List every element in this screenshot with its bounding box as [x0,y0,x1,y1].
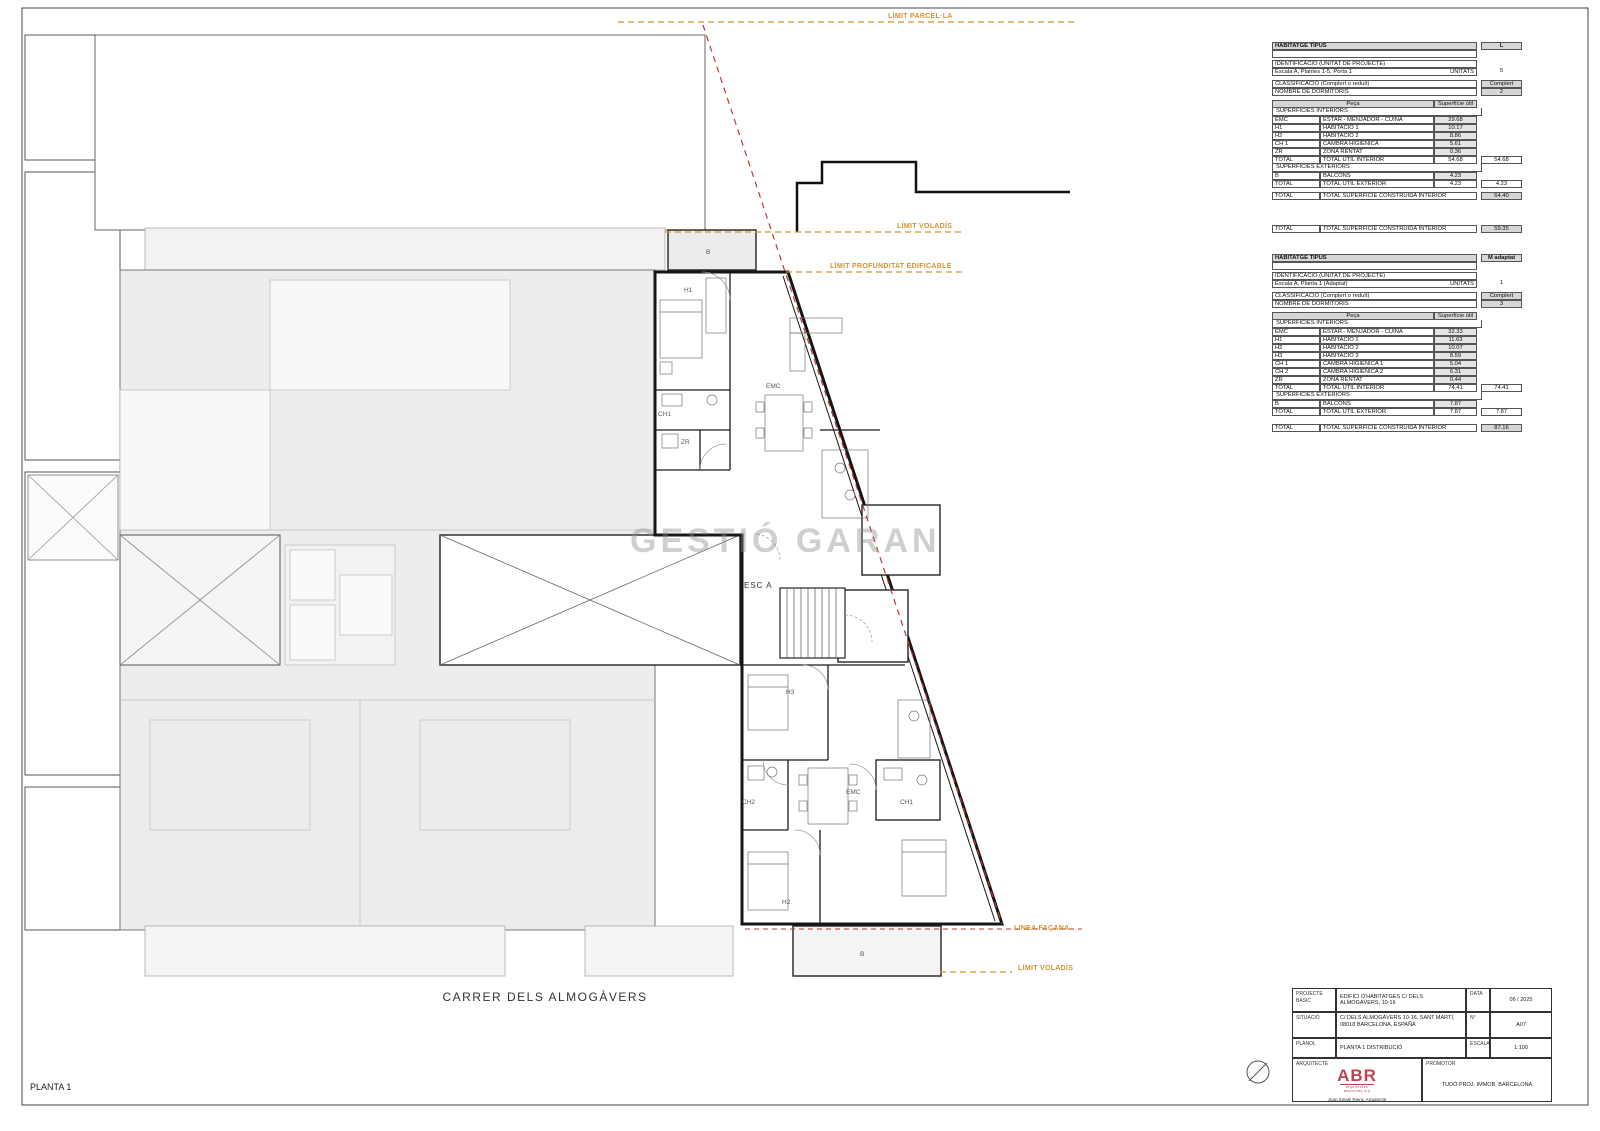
row-code: EMC [1272,116,1320,124]
t2-ident-value: Escala A, Planta 1 (Adaptat) UNITATS [1272,280,1477,288]
table-row: CH 2 CAMBRA HIGIÈNICA 2 6.31 [1272,368,1524,376]
row-name: HABITACIÓ 3 [1320,352,1434,360]
row-name: TOTAL ÚTIL INTERIOR [1320,156,1434,164]
situacio-value: C/ DELS ALMOGÀVERS 10-16, SANT MARTÍ, 08… [1336,1012,1466,1038]
table-row: EMC ESTAR - MENJADOR - CUINA 32.33 [1272,328,1524,336]
row-total: 7.87 [1481,408,1522,416]
table-row: B BALCONS 4.23 [1272,172,1524,180]
row-value: 7.87 [1434,408,1477,416]
data-value: 06 / 2025 [1490,988,1552,1012]
escala-label: ESCALA [1466,1038,1490,1058]
row-code: H2 [1272,132,1320,140]
terrace-lower [838,590,908,662]
balcony-top [668,230,756,270]
t1-ident-label: IDENTIFICACIÓ (UNITAT DE PROJECTE) [1272,60,1477,68]
table-row: EMC ESTAR - MENJADOR - CUINA 29.68 [1272,116,1524,124]
t2-unitats-value: 1 [1481,280,1522,288]
table-row: ZR ZONA RENTAT 0.36 [1272,148,1524,156]
t2-unitats-label: UNITATS [1450,281,1474,287]
room-label-h3: H3 [786,689,795,696]
linea-facana-label: LINEA FAÇANA [1014,925,1069,932]
row-name: TOTAL ÚTIL EXTERIOR [1320,180,1434,188]
row-code: H2 [1272,344,1320,352]
projecte-value: EDIFICI D'HABITATGES C/ DELS ALMOGÀVERS,… [1336,988,1466,1012]
table-row: H1 HABITACIÓ 1 11.63 [1272,336,1524,344]
limit-voladis-top-label: LÍMIT VOLADÍS [897,221,952,230]
room-label-emc-upper: EMC [766,383,781,390]
row-total: 54.68 [1481,156,1522,164]
title-block: PROJECTE BÀSIC EDIFICI D'HABITATGES C/ D… [1292,988,1552,1102]
row-value: 4.23 [1434,172,1477,180]
t1-dorm-value: 2 [1481,88,1522,96]
room-label-h1: H1 [684,287,693,294]
row-name: CAMBRA HIGIÈNICA 2 [1320,368,1434,376]
room-label-emc-lower: EMC [846,789,861,796]
row-name: ESTAR - MENJADOR - CUINA [1320,328,1434,336]
street-label: CARRER DELS ALMOGÀVERS [442,989,647,1004]
data-label: DATA [1466,988,1490,1012]
row-code: ZR [1272,376,1320,384]
row-value: 0.44 [1434,376,1477,384]
t1-tipus-label: HABITATGE TIPUS [1272,42,1477,50]
row-value: 7.87 [1434,400,1477,408]
planol-value: PLANTA 1 DISTRIBUCIÓ [1336,1038,1466,1058]
balcony-bottom [793,926,941,976]
table-row: B BALCONS 7.87 [1272,400,1524,408]
num-value: A07 [1490,1012,1552,1038]
t2-blank-row [1272,262,1477,270]
situacio-label: SITUACIÓ [1292,1012,1336,1038]
row-name: HABITACIÓ 1 [1320,124,1434,132]
row-code: H1 [1272,336,1320,344]
t2-classif-value: Complert [1481,292,1522,300]
row-name: ESTAR - MENJADOR - CUINA [1320,116,1434,124]
row-code: TOTAL [1272,180,1320,188]
room-label-balcony-bottom: B [860,951,864,958]
sidewalk-center [585,926,733,976]
row-name: BALCONS [1320,400,1434,408]
t1-built-total-row: TOTAL TOTAL SUPERFÍCIE CONSTRUÏDA INTERI… [1272,192,1524,200]
row-value: 32.33 [1434,328,1477,336]
row-value: 29.68 [1434,116,1477,124]
row-code: H3 [1272,352,1320,360]
row-value: 5.04 [1434,360,1477,368]
table-habitatge-m: HABITATGE TIPUS M adaptat IDENTIFICACIÓ … [1272,254,1524,432]
mid-total-row: TOTAL TOTAL SUPERFÍCIE CONSTRUÏDA INTERI… [1272,225,1524,233]
t2-dorm-value: 3 [1481,300,1522,308]
row-name: HABITACIÓ 2 [1320,344,1434,352]
t2-col-sup: Superfície útil [1434,312,1477,320]
row-code: ZR [1272,148,1320,156]
row-total: 59.35 [1481,225,1522,233]
table-row: H2 HABITACIÓ 2 10.07 [1272,344,1524,352]
row-name: TOTAL ÚTIL EXTERIOR [1320,408,1434,416]
lightwell-left [120,535,280,665]
row-value: 74.41 [1434,384,1477,392]
row-code: TOTAL [1272,384,1320,392]
t1-classif-value: Complert [1481,80,1522,88]
row-value: 8.86 [1434,132,1477,140]
t2-ident-text: Escala A, Planta 1 (Adaptat) [1275,281,1348,287]
room-label-h2: H2 [782,899,791,906]
row-name: TOTAL SUPERFÍCIE CONSTRUÏDA INTERIOR [1320,225,1477,233]
row-name: HABITACIÓ 1 [1320,336,1434,344]
t1-blank-row [1272,50,1477,58]
row-code: CH 1 [1272,140,1320,148]
arquitecte-cell: ARQUITECTE ABR arquitectes associats slp… [1292,1058,1422,1102]
t2-dorm-label: NOMBRE DE DORMITORIS [1272,300,1477,308]
table-row: H2 HABITACIÓ 2 8.86 [1272,132,1524,140]
row-value: 11.63 [1434,336,1477,344]
row-name: TOTAL SUPERFÍCIE CONSTRUÏDA INTERIOR [1320,424,1477,432]
t2-int-total-row: TOTAL TOTAL ÚTIL INTERIOR 74.41 74.41 [1272,384,1524,392]
row-name: HABITACIÓ 2 [1320,132,1434,140]
row-total: 74.41 [1481,384,1522,392]
limit-parcella-label: LÍMIT PARCEL·LA [888,11,953,20]
left-shaft-cross [28,475,118,560]
row-code: TOTAL [1272,424,1320,432]
row-total: 87.16 [1481,424,1522,432]
row-value: 4.23 [1434,180,1477,188]
sidewalk-left [145,926,505,976]
row-name: ZONA RENTAT [1320,376,1434,384]
t2-ext-total-row: TOTAL TOTAL ÚTIL EXTERIOR 7.87 7.87 [1272,408,1524,416]
parcel-wall-stepped [797,162,1070,232]
promotor-value: TUDÓ PROJ. IMMOB. BARCELONA [1426,1082,1548,1089]
t2-int-header: SUPERFÍCIES INTERIORS [1272,320,1482,328]
t1-int-total-row: TOTAL TOTAL ÚTIL INTERIOR 54.68 54.68 [1272,156,1524,164]
row-code: TOTAL [1272,156,1320,164]
t2-col-peca: Peça [1272,312,1434,320]
row-name: TOTAL SUPERFÍCIE CONSTRUÏDA INTERIOR [1320,192,1477,200]
row-total: 64.40 [1481,192,1522,200]
watermark: GESTIÓ GARANTIA [630,522,940,560]
row-value: 5.61 [1434,140,1477,148]
t2-ident-label: IDENTIFICACIÓ (UNITAT DE PROJECTE) [1272,272,1477,280]
t1-unitats-value: 5 [1481,68,1522,76]
row-name: CAMBRA HIGIÈNICA [1320,140,1434,148]
t2-built-total-row: TOTAL TOTAL SUPERFÍCIE CONSTRUÏDA INTERI… [1272,424,1524,432]
t2-ext-header: SUPERFÍCIES EXTERIORS [1272,392,1482,400]
row-code: TOTAL [1272,192,1320,200]
promotor-label: PROMOTOR [1426,1061,1548,1068]
abr-logo-caption: arquitectes associats slp [1340,1084,1374,1093]
limit-profunditat-label: LÍMIT PROFUNDITAT EDIFICABLE [830,261,952,270]
architect-name: Joan Ignasi Riera, Arquitecte [1296,1097,1418,1103]
limit-voladis-bottom-label: LÍMIT VOLADÍS [1018,963,1073,972]
t1-ident-text: Escala A, Plantes 1-5, Porta 1 [1275,69,1352,75]
orientation-symbol [1247,1061,1269,1083]
t1-ext-total-row: TOTAL TOTAL ÚTIL EXTERIOR 4.23 4.23 [1272,180,1524,188]
t1-int-header: SUPERFÍCIES INTERIORS [1272,108,1482,116]
row-name: BALCONS [1320,172,1434,180]
t1-col-sup: Superfície útil [1434,100,1477,108]
room-label-ch1-upper: CH1 [658,411,671,418]
row-name: CAMBRA HIGIÈNICA 1 [1320,360,1434,368]
t2-tipus-label: HABITATGE TIPUS [1272,254,1477,262]
row-code: TOTAL [1272,408,1320,416]
abr-logo: ABR [1296,1068,1418,1084]
stair-label: ESC A [744,581,773,590]
table-row: H1 HABITACIÓ 1 10.17 [1272,124,1524,132]
row-code: B [1272,172,1320,180]
row-code: CH 1 [1272,360,1320,368]
table-row: ZR ZONA RENTAT 0.44 [1272,376,1524,384]
row-total: 4.23 [1481,180,1522,188]
escala-value: 1:100 [1490,1038,1552,1058]
t1-ident-value: Escala A, Plantes 1-5, Porta 1 UNITATS [1272,68,1477,76]
table-habitatge-l: HABITATGE TIPUS L IDENTIFICACIÓ (UNITAT … [1272,42,1524,200]
row-code: EMC [1272,328,1320,336]
row-value: 6.31 [1434,368,1477,376]
row-value: 8.59 [1434,352,1477,360]
row-code: TOTAL [1272,225,1320,233]
plan-title: PLANTA 1 [30,1082,71,1092]
row-value: 0.36 [1434,148,1477,156]
t1-ext-header: SUPERFÍCIES EXTERIORS [1272,164,1482,172]
surface-tables: HABITATGE TIPUS L IDENTIFICACIÓ (UNITAT … [1272,42,1524,432]
table-row: H3 HABITACIÓ 3 8.59 [1272,352,1524,360]
t1-col-peca: Peça [1272,100,1434,108]
t1-unitats-label: UNITATS [1450,69,1474,75]
stair-core [780,588,845,658]
drawing-sheet: LÍMIT PARCEL·LA LÍMIT VOLADÍS LÍMIT PROF… [0,0,1600,1131]
row-code: B [1272,400,1320,408]
room-label-ch1-lower: CH1 [900,799,913,806]
t2-tipus-value: M adaptat [1481,254,1522,262]
projecte-label-line2: BÀSIC [1296,998,1332,1005]
num-label: N° [1466,1012,1490,1038]
table-row: CH 1 CAMBRA HIGIÈNICA 5.61 [1272,140,1524,148]
room-label-balcony-top: B [706,249,710,256]
row-name: ZONA RENTAT [1320,148,1434,156]
planol-label: PLÀNOL [1292,1038,1336,1058]
table-row: CH 1 CAMBRA HIGIÈNICA 1 5.04 [1272,360,1524,368]
row-code: CH 2 [1272,368,1320,376]
t1-tipus-value: L [1481,42,1522,50]
t1-dorm-label: NOMBRE DE DORMITORIS [1272,88,1477,96]
promotor-cell: PROMOTOR TUDÓ PROJ. IMMOB. BARCELONA [1422,1058,1552,1102]
row-value: 10.17 [1434,124,1477,132]
neighbor-top-building [95,35,705,230]
projecte-label: PROJECTE BÀSIC [1292,988,1336,1012]
setback-strip [145,228,665,270]
row-value: 54.68 [1434,156,1477,164]
row-value: 10.07 [1434,344,1477,352]
room-label-ch2: CH2 [742,799,755,806]
t2-classif-label: CLASSIFICACIÓ (Complert o reduït) [1272,292,1477,300]
room-label-zr: ZR [681,439,690,446]
row-code: H1 [1272,124,1320,132]
row-name: TOTAL ÚTIL INTERIOR [1320,384,1434,392]
t1-classif-label: CLASSIFICACIÓ (Complert o reduït) [1272,80,1477,88]
